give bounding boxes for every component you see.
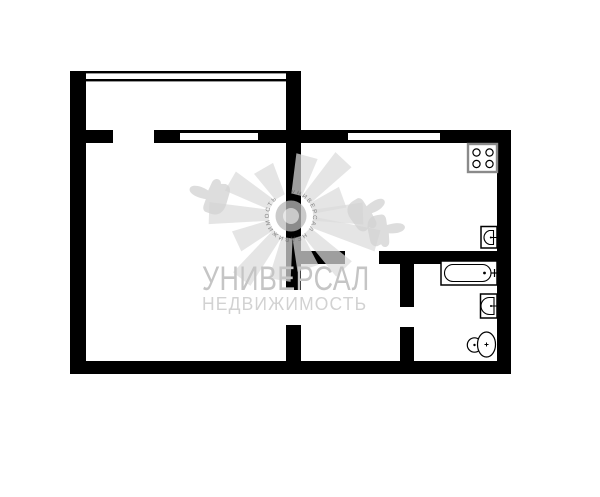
watermark-title: УНИВЕРСАЛ	[202, 262, 370, 296]
watermark: УНИВЕРСАЛ НЕДВИЖИМОСТЬ	[0, 0, 600, 497]
watermark-subtitle: НЕДВИЖИМОСТЬ	[202, 295, 367, 313]
thumbs-up-icon	[366, 212, 407, 250]
floor-plan-image: УНИВЕРСАЛ НЕДВИЖИМОСТЬ УНИВЕРСАЛ НЕДВИЖИ…	[0, 0, 600, 497]
